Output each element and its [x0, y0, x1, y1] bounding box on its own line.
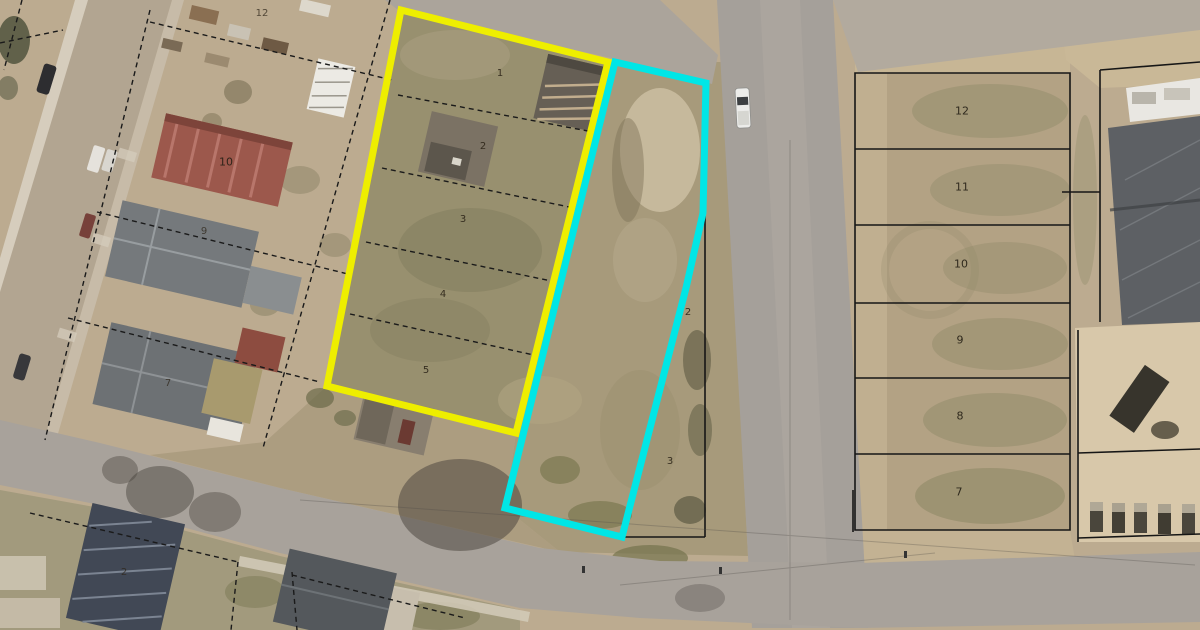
lot-label: 10	[219, 157, 233, 168]
lot-label: 2	[480, 142, 486, 152]
aerial-basemap	[0, 0, 1200, 630]
lot-label: 7	[165, 379, 171, 389]
lot-label: 12	[256, 9, 269, 19]
lot-label: 10	[954, 259, 968, 270]
lot-label: 8	[957, 411, 964, 422]
aerial-parcel-map[interactable]: 1 2 3 4 5 2 3 12 11 10 9 8 7 12 10 9 7 2	[0, 0, 1200, 630]
lot-label: 2	[685, 308, 691, 318]
lot-label: 1	[497, 69, 503, 79]
white-pickup-truck	[735, 88, 751, 129]
lot-label: 7	[956, 487, 963, 498]
lot-label: 5	[423, 366, 429, 376]
lot-label: 3	[460, 215, 466, 225]
lot-label: 12	[955, 106, 969, 117]
lot-label: 2	[121, 568, 127, 578]
lot-label: 9	[201, 227, 207, 237]
east-block-sand-strip	[855, 73, 887, 530]
lot-label: 3	[667, 457, 673, 467]
lot-label: 11	[955, 182, 969, 193]
lot-label: 4	[440, 290, 446, 300]
lot-label: 9	[957, 335, 964, 346]
